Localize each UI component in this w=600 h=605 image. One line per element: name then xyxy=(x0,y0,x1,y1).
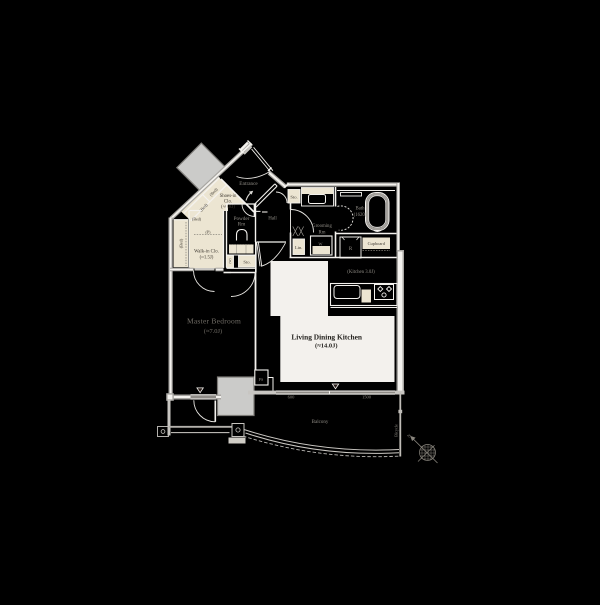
svg-text:Cupboard: Cupboard xyxy=(368,241,386,246)
svg-text:Sto.: Sto. xyxy=(243,259,250,264)
svg-text:Lin.: Lin. xyxy=(295,245,303,250)
svg-text:Bath: Bath xyxy=(355,207,365,212)
svg-text:600: 600 xyxy=(288,394,296,399)
svg-text:PS: PS xyxy=(259,377,263,382)
svg-text:Sto.: Sto. xyxy=(290,194,297,199)
svg-text:Grooming: Grooming xyxy=(312,224,332,229)
svg-text:1500: 1500 xyxy=(362,394,372,399)
svg-text:(Kitchen 3.0J): (Kitchen 3.0J) xyxy=(347,270,375,275)
svg-text:Entrance: Entrance xyxy=(239,181,258,187)
svg-text:Living Dining Kitchen: Living Dining Kitchen xyxy=(291,332,362,341)
svg-text:Rm: Rm xyxy=(238,222,246,228)
svg-text:(P): (P) xyxy=(206,229,212,234)
svg-text:Hall: Hall xyxy=(268,217,277,222)
svg-text:Walk-in Clo.: Walk-in Clo. xyxy=(194,250,219,255)
svg-text:(Bed): (Bed) xyxy=(179,238,184,248)
svg-text:Shoes-in: Shoes-in xyxy=(220,194,237,199)
svg-text:(W): (W) xyxy=(228,258,232,263)
svg-text:Balcony: Balcony xyxy=(312,420,329,425)
svg-text:(Bed): (Bed) xyxy=(192,216,202,221)
svg-text:(≈14.0J): (≈14.0J) xyxy=(315,343,338,350)
svg-text:(≈7.0J): (≈7.0J) xyxy=(204,328,222,335)
svg-text:(≈0.8J): (≈0.8J) xyxy=(221,205,235,210)
svg-text:Master Bedroom: Master Bedroom xyxy=(187,316,241,325)
svg-text:(≈1.5J): (≈1.5J) xyxy=(200,256,214,261)
svg-text:Bicycle: Bicycle xyxy=(394,424,399,437)
svg-text:Rm: Rm xyxy=(319,231,326,236)
svg-text:(1620): (1620) xyxy=(354,213,367,218)
